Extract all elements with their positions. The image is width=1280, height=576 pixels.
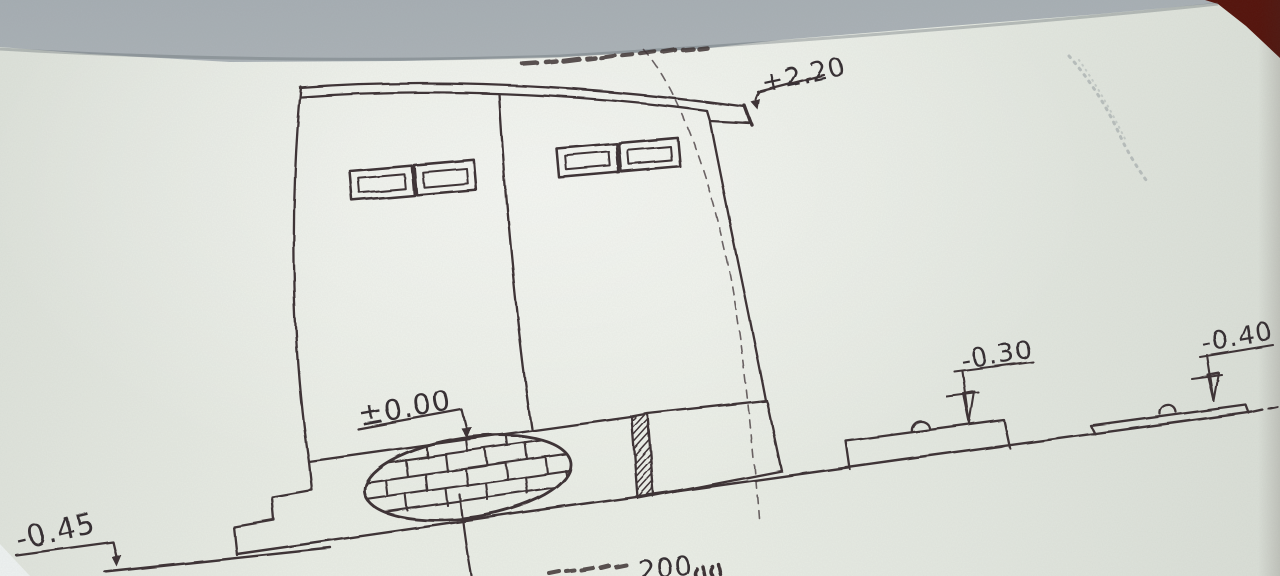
- paper-grain: [0, 0, 1280, 576]
- elevation-drawing-svg: +2.20 ±0.00 -0.30 -0: [0, 0, 1280, 576]
- photographed-elevation-drawing: +2.20 ±0.00 -0.30 -0: [0, 0, 1280, 576]
